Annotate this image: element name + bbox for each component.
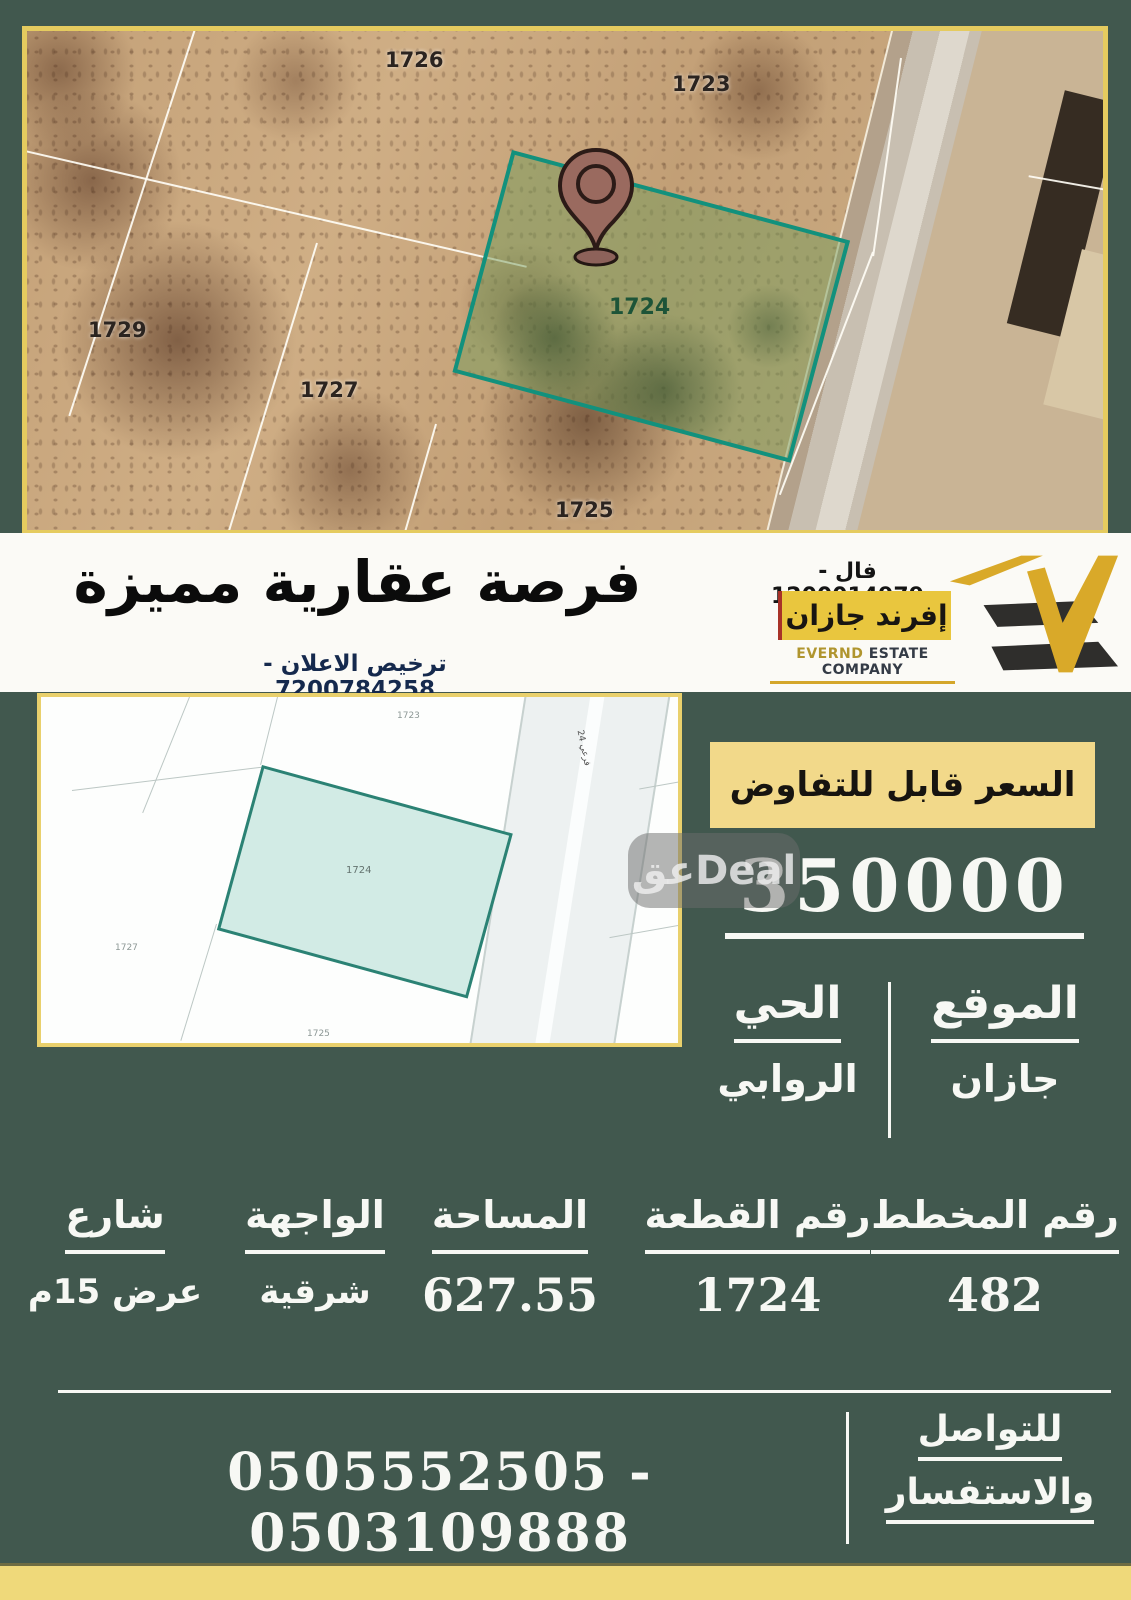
contact-label-line1: للتواصل <box>918 1408 1063 1461</box>
watermark: عقDeal <box>628 833 800 908</box>
parcel-line <box>142 697 190 813</box>
boundary-line <box>68 26 197 416</box>
detail-header: شارع <box>65 1192 164 1254</box>
detail-value: 482 <box>860 1268 1130 1322</box>
detail-value: 627.55 <box>405 1268 615 1322</box>
detail-header-wrap: الواجهة <box>230 1192 400 1254</box>
brand-badge: إفرند جازان <box>778 591 951 640</box>
cadastral-map: فرعي 24 1724 1723 1727 1725 <box>37 693 682 1047</box>
detail-header-wrap: المساحة <box>405 1192 615 1254</box>
location-label: الموقع <box>931 978 1079 1043</box>
plot-label: 1723 <box>672 72 730 96</box>
detail-column: رقم القطعة 1724 <box>630 1192 885 1322</box>
detail-header: الواجهة <box>245 1192 385 1254</box>
real-estate-flyer: 1724 1726 1723 1729 1727 1725 فرصة عقاري… <box>0 0 1131 1600</box>
detail-value: شرقية <box>230 1272 400 1312</box>
price-negotiable-banner: السعر قابل للتفاوض <box>710 742 1095 828</box>
boundary-line <box>403 424 437 535</box>
plot-label: 1726 <box>385 48 443 72</box>
detail-header-wrap: رقم القطعة <box>630 1192 885 1254</box>
location-pin-icon <box>545 145 645 270</box>
detail-value: عرض 15م <box>10 1272 220 1312</box>
parcel-line <box>72 767 263 791</box>
contact-numbers: 0505552505 - 0503109888 <box>60 1442 820 1564</box>
parcel-line <box>180 924 217 1041</box>
district-value: الروابي <box>695 1057 880 1101</box>
parcel-line <box>260 697 278 765</box>
watermark-text: عقDeal <box>632 848 796 894</box>
divider <box>846 1412 849 1544</box>
plot-label: 1729 <box>88 318 146 342</box>
banner: فرصة عقارية مميزة ترخيص الاعلان - 720078… <box>0 533 1131 692</box>
cadastral-plot-label: 1727 <box>115 943 138 953</box>
brand-name-en: EVERND ESTATE COMPANY <box>770 646 955 684</box>
contact-label: للتواصل والاستفسار <box>865 1408 1115 1534</box>
plot-label: 1725 <box>555 498 613 522</box>
plot-label: 1727 <box>300 378 358 402</box>
contact-label-line2-wrap: والاستفسار <box>865 1471 1115 1524</box>
evernd-logo-icon <box>942 543 1120 688</box>
district-label: الحي <box>734 978 842 1043</box>
district-label-wrap: الحي <box>695 978 880 1043</box>
brand-en-first: EVERND <box>796 646 863 662</box>
contact-label-line1-wrap: للتواصل <box>865 1408 1115 1461</box>
detail-header: رقم القطعة <box>645 1192 871 1254</box>
detail-header: المساحة <box>432 1192 588 1254</box>
detail-header-wrap: رقم المخطط <box>860 1192 1130 1254</box>
cadastral-plot-label: 1723 <box>397 711 420 721</box>
contact-label-line2: والاستفسار <box>886 1471 1094 1524</box>
cadastral-highlighted-plot-label: 1724 <box>346 865 371 876</box>
divider <box>888 982 891 1138</box>
divider-line <box>58 1390 1111 1393</box>
footer-bar <box>0 1563 1131 1600</box>
cadastral-plot-label: 1725 <box>307 1029 330 1039</box>
cadastral-highlighted-plot <box>217 765 513 999</box>
detail-value: 1724 <box>630 1268 885 1322</box>
district-column: الحي الروابي <box>695 978 880 1138</box>
location-label-wrap: الموقع <box>895 978 1115 1043</box>
location-column: الموقع جازان <box>895 978 1115 1138</box>
satellite-map: 1724 1726 1723 1729 1727 1725 <box>22 26 1108 535</box>
highlighted-plot-label: 1724 <box>609 295 670 320</box>
boundary-line <box>25 150 527 268</box>
detail-column: الواجهة شرقية <box>230 1192 400 1312</box>
detail-header-wrap: شارع <box>10 1192 220 1254</box>
location-value: جازان <box>895 1057 1115 1101</box>
detail-column: شارع عرض 15م <box>10 1192 220 1312</box>
detail-column: رقم المخطط 482 <box>860 1192 1130 1322</box>
page-title: فرصة عقارية مميزة <box>30 539 685 626</box>
detail-column: المساحة 627.55 <box>405 1192 615 1322</box>
detail-header: رقم المخطط <box>871 1192 1119 1254</box>
location-block: الموقع جازان الحي الروابي <box>695 978 1115 1138</box>
